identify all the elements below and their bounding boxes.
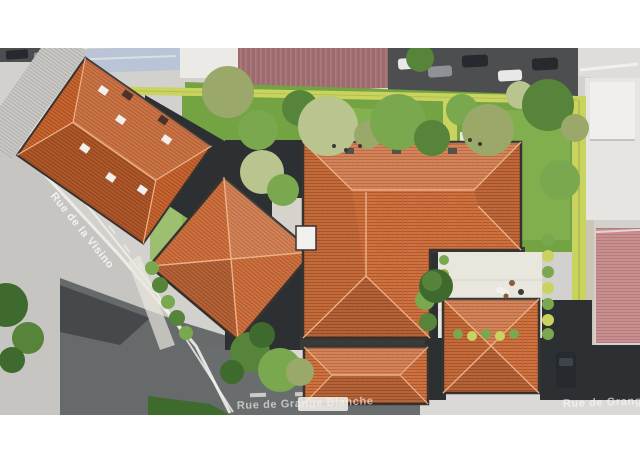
person — [518, 289, 524, 295]
person — [509, 280, 515, 286]
car — [498, 69, 523, 81]
tree — [561, 114, 589, 142]
bush — [161, 295, 175, 309]
terrace-furniture — [468, 138, 472, 142]
bush — [169, 310, 185, 326]
tree — [298, 96, 358, 156]
bush — [542, 234, 554, 246]
scene-svg: Rue de la Visino Rue de Grange Blanche R… — [0, 0, 640, 470]
bush — [509, 329, 519, 339]
bush — [542, 328, 554, 340]
bush — [542, 250, 554, 262]
bush — [179, 326, 193, 340]
tree — [238, 110, 278, 150]
bush — [439, 255, 449, 265]
new-building-garage — [443, 299, 539, 393]
tree — [202, 66, 254, 118]
bush — [542, 266, 554, 278]
street-label-bottom-right: Rue de Grange Bl — [563, 394, 640, 410]
neighbour-roof-dark — [590, 345, 640, 400]
letterbox-top — [0, 0, 640, 48]
tree — [249, 322, 275, 348]
car — [428, 65, 453, 78]
roof-window — [448, 148, 457, 154]
letterbox-bottom — [0, 415, 640, 470]
bush — [152, 277, 168, 293]
aerial-render-image: Rue de la Visino Rue de Grange Blanche R… — [0, 0, 640, 470]
tree — [0, 347, 25, 373]
chimney-block — [296, 226, 316, 250]
tree — [286, 358, 314, 386]
bush — [467, 331, 477, 341]
neighbour-roof-white — [590, 82, 635, 140]
label-overlay-patch — [298, 397, 348, 411]
car — [6, 49, 29, 60]
terrace-furniture — [344, 148, 348, 152]
bush — [453, 329, 463, 339]
bush — [542, 298, 554, 310]
terrace-furniture — [332, 144, 336, 148]
driveway-car — [556, 352, 576, 388]
bush — [542, 282, 554, 294]
tree — [414, 120, 450, 156]
neighbour-roof-pink — [596, 228, 640, 343]
terrace-furniture — [478, 142, 482, 146]
photo-area: Rue de la Visino Rue de Grange Blanche R… — [0, 29, 640, 415]
tree — [540, 160, 580, 200]
road-dash — [250, 393, 266, 398]
tree — [462, 104, 514, 156]
tree — [406, 44, 434, 72]
bush — [495, 331, 505, 341]
bush — [481, 329, 491, 339]
bush — [419, 313, 437, 331]
terrace-furniture — [358, 144, 362, 148]
person — [504, 294, 509, 299]
car — [556, 352, 576, 388]
bush — [145, 261, 159, 275]
car — [462, 54, 489, 67]
tree-highlight — [422, 271, 442, 291]
car — [532, 57, 559, 70]
tree — [267, 174, 299, 206]
tree — [220, 360, 244, 384]
bush — [542, 314, 554, 326]
car-windshield — [559, 358, 573, 366]
